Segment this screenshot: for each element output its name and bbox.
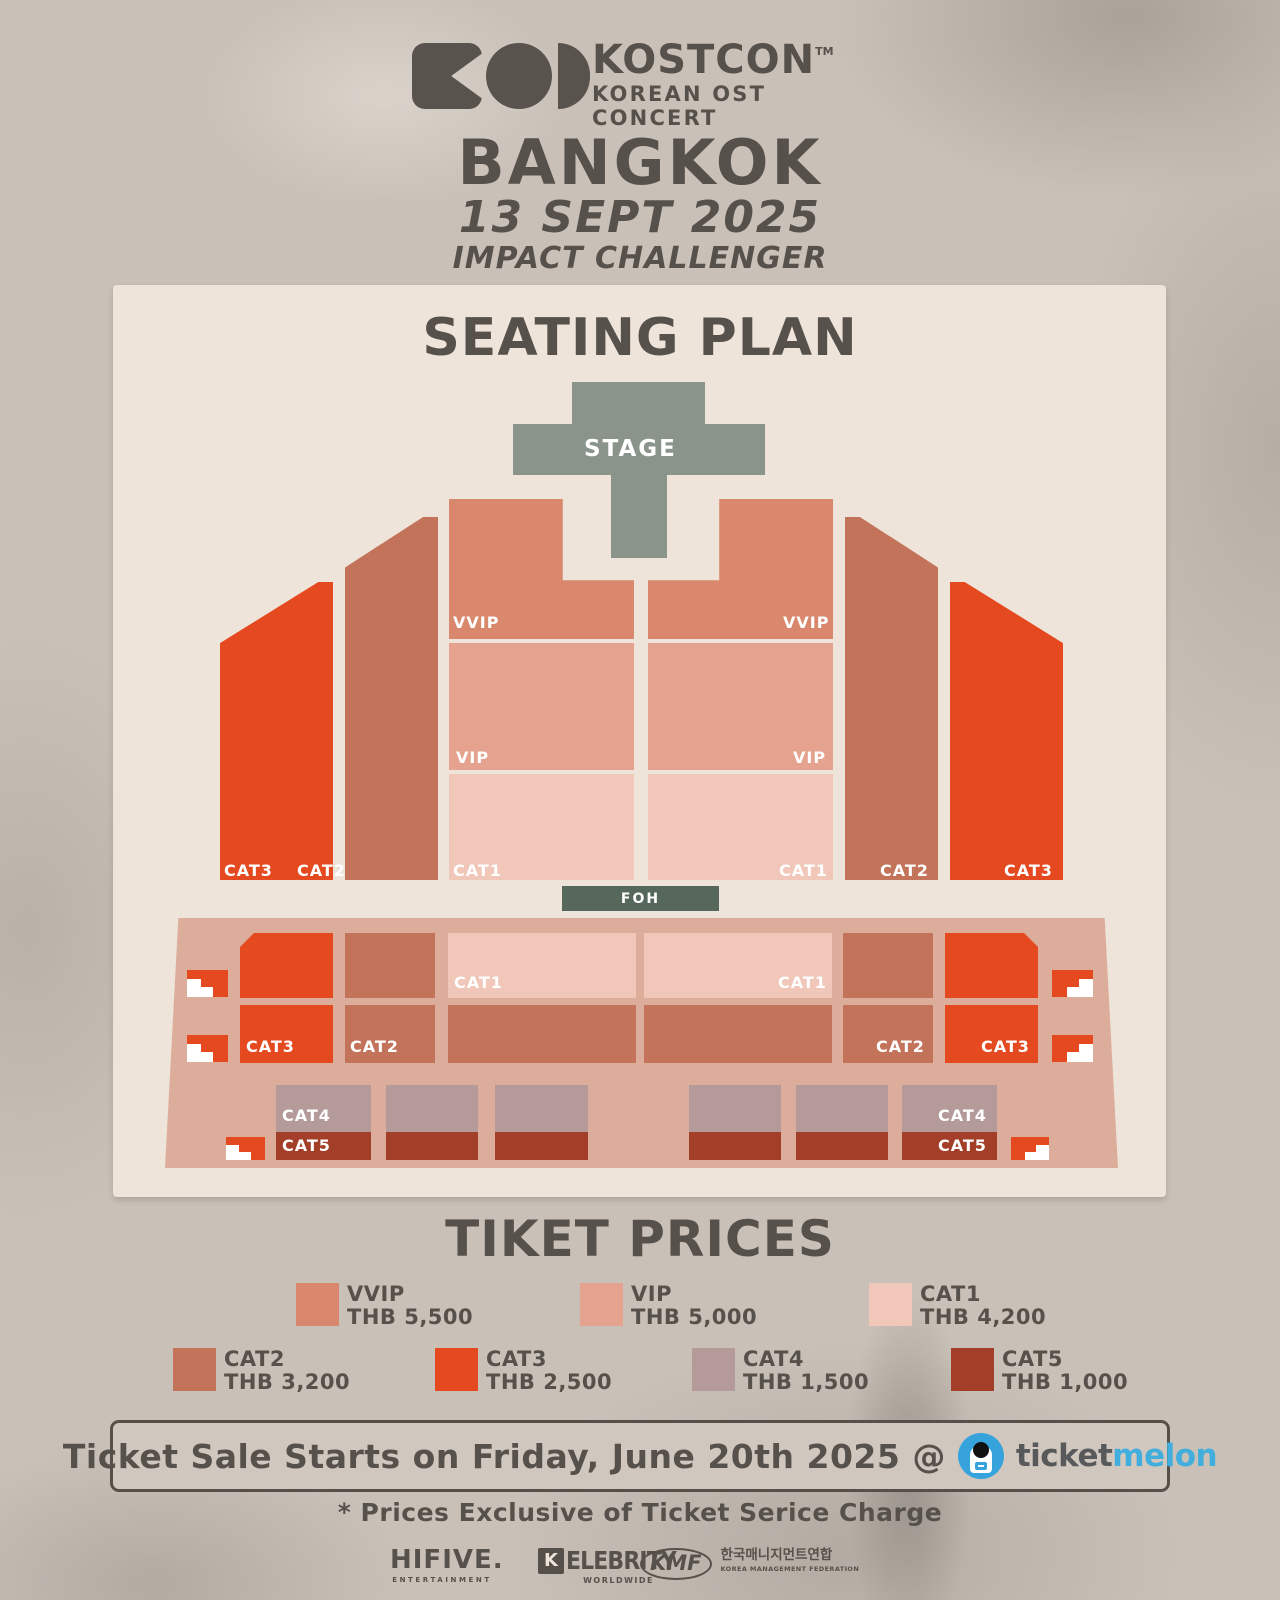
label-vip-left: VIP [456, 750, 489, 766]
price-value: THB 5,000 [631, 1305, 757, 1329]
stairs-icon [1052, 970, 1093, 997]
section-cat4-col5 [796, 1085, 888, 1132]
logo-c-glyph [558, 43, 590, 109]
stairs-icon [187, 970, 228, 997]
stairs-icon [226, 1137, 265, 1160]
kmf-english-name: KOREA MANAGEMENT FEDERATION [721, 1565, 860, 1573]
kmf-logo: KMF 한국매니지먼트연합 KOREA MANAGEMENT FEDERATIO… [640, 1548, 859, 1580]
price-swatch-cat3 [435, 1348, 478, 1391]
label-cat4-right: CAT4 [938, 1108, 987, 1124]
label-cat1-front-right: CAT1 [779, 863, 828, 879]
price-value: THB 5,500 [347, 1305, 473, 1329]
label-cat2-rear-left: CAT2 [350, 1039, 399, 1055]
label-cat1-rear-left: CAT1 [454, 975, 503, 991]
section-cat5-col4 [689, 1132, 781, 1160]
section-cat3-rear-row1-right [945, 933, 1038, 998]
stage-shape-thrust [611, 473, 667, 558]
kelebrity-k-icon: K [538, 1548, 564, 1574]
label-cat5-left: CAT5 [282, 1138, 331, 1154]
concert-poster: KOSTCONTM KOREAN OST CONCERT BANGKOK 13 … [0, 0, 1280, 1600]
ticketmelon-melon: melon [1112, 1438, 1217, 1474]
price-value: THB 1,000 [1002, 1370, 1128, 1394]
logo-k-glyph [412, 43, 482, 109]
stage-shape-top [572, 382, 705, 426]
kostcon-logo-icon [412, 43, 592, 109]
event-city: BANGKOK [0, 126, 1280, 199]
label-cat3-front-right: CAT3 [1004, 863, 1053, 879]
section-cat2-front-left [345, 517, 438, 880]
section-cat5-col3 [495, 1132, 588, 1160]
ticketmelon-wordmark: ticketmelon [1016, 1438, 1217, 1474]
price-swatch-vip [580, 1283, 623, 1326]
foh-label: FOH [621, 891, 660, 907]
kmf-korean-name: 한국매니지먼트연합 [721, 1548, 860, 1563]
label-cat2-front-right: CAT2 [880, 863, 929, 879]
price-label: CAT3 [486, 1347, 547, 1371]
label-cat2-rear-right: CAT2 [876, 1039, 925, 1055]
label-cat1-rear-right: CAT1 [778, 975, 827, 991]
label-cat5-right: CAT5 [938, 1138, 987, 1154]
label-cat1-front-left: CAT1 [453, 863, 502, 879]
stairs-icon [1011, 1137, 1049, 1160]
label-cat3-rear-left: CAT3 [246, 1039, 295, 1055]
section-cat2-front-right [845, 517, 938, 880]
price-value: THB 3,200 [224, 1370, 350, 1394]
price-swatch-vvip [296, 1283, 339, 1326]
price-value: THB 1,500 [743, 1370, 869, 1394]
stairs-icon [1052, 1035, 1093, 1062]
price-swatch-cat2 [173, 1348, 216, 1391]
brand-text: KOSTCON [592, 37, 815, 83]
trademark: TM [815, 45, 833, 58]
label-cat3-rear-right: CAT3 [981, 1039, 1030, 1055]
section-cat2-rear-wide-right [644, 1005, 832, 1063]
brand-tagline: KOREAN OST CONCERT [592, 82, 892, 130]
price-value: THB 4,200 [920, 1305, 1046, 1329]
section-cat5-col2 [386, 1132, 478, 1160]
brand-block: KOSTCONTM KOREAN OST CONCERT [592, 40, 892, 130]
label-cat4-left: CAT4 [282, 1108, 331, 1124]
section-cat4-col3 [495, 1085, 588, 1132]
hifive-logo: HIFIVE. ENTERTAINMENT [390, 1547, 494, 1584]
logo-o-glyph [486, 43, 552, 109]
stairs-icon [187, 1035, 228, 1062]
foh-box: FOH [562, 886, 719, 911]
section-cat3-rear-row1-left [240, 933, 333, 998]
label-vvip-right: VVIP [783, 615, 829, 631]
ticket-prices-title: TIKET PRICES [0, 1210, 1280, 1268]
ticket-sale-text: Ticket Sale Starts on Friday, June 20th … [63, 1437, 946, 1476]
ticketmelon-icon [958, 1433, 1004, 1479]
section-cat2-rear-row1-right [843, 933, 933, 998]
hifive-name: HIFIVE. [390, 1547, 494, 1573]
event-date: 13 SEPT 2025 [0, 192, 1280, 243]
price-swatch-cat1 [869, 1283, 912, 1326]
price-label: VIP [631, 1282, 672, 1306]
section-cat5-col5 [796, 1132, 888, 1160]
section-cat4-col4 [689, 1085, 781, 1132]
price-swatch-cat4 [692, 1348, 735, 1391]
ticket-sale-banner: Ticket Sale Starts on Friday, June 20th … [110, 1420, 1170, 1492]
price-label: CAT4 [743, 1347, 804, 1371]
label-vvip-left: VVIP [453, 615, 499, 631]
kmf-mark: KMF [640, 1548, 712, 1580]
label-vip-right: VIP [793, 750, 826, 766]
price-value: THB 2,500 [486, 1370, 612, 1394]
kelebrity-sub: WORLDWIDE [538, 1576, 654, 1585]
label-cat2-front-left: CAT2 [297, 863, 346, 879]
ticketmelon-ticket: ticket [1016, 1438, 1112, 1474]
seating-plan-title: SEATING PLAN [0, 308, 1280, 368]
stage-label: STAGE [584, 436, 677, 462]
section-cat2-rear-row1-left [345, 933, 435, 998]
price-footnote: * Prices Exclusive of Ticket Serice Char… [0, 1498, 1280, 1527]
price-label: CAT2 [224, 1347, 285, 1371]
hifive-sub: ENTERTAINMENT [390, 1576, 494, 1584]
section-cat2-rear-wide-left [448, 1005, 636, 1063]
label-cat3-front-left: CAT3 [224, 863, 273, 879]
price-label: CAT5 [1002, 1347, 1063, 1371]
event-venue: IMPACT CHALLENGER [0, 241, 1280, 276]
section-cat4-col2 [386, 1085, 478, 1132]
price-swatch-cat5 [951, 1348, 994, 1391]
price-label: VVIP [347, 1282, 405, 1306]
price-label: CAT1 [920, 1282, 981, 1306]
brand-name: KOSTCONTM [592, 40, 892, 80]
